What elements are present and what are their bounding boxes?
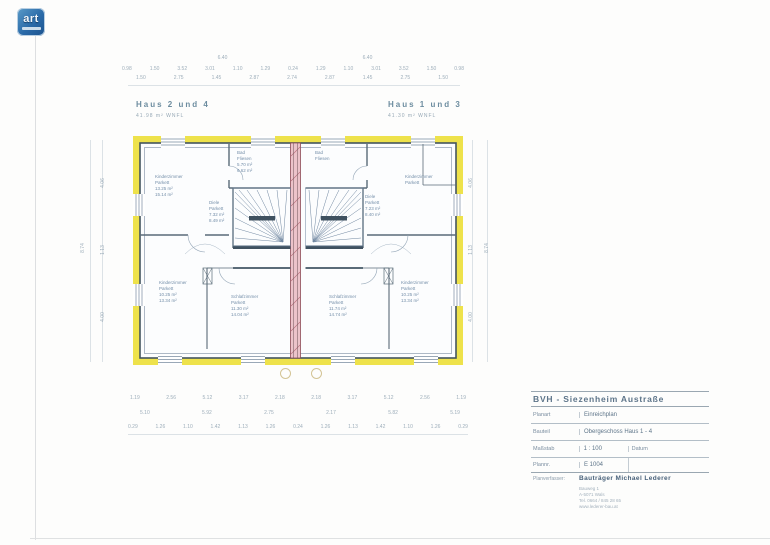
room-floor: Parkett <box>155 180 170 185</box>
dimension-value: 2.75 <box>400 75 410 81</box>
room-floor: Parkett <box>231 300 246 305</box>
field-label: Plannr. <box>531 462 579 468</box>
dimension-value: 1.29 <box>260 66 270 72</box>
scan-edge-line <box>35 28 36 540</box>
dimension-value: 1.50 <box>427 66 437 72</box>
room-area: 5.70 m² <box>237 162 253 167</box>
window-top-1 <box>161 136 185 148</box>
room-floor: Fliesen <box>237 156 252 161</box>
grid-bubble <box>280 368 291 379</box>
dimension-value: 5.12 <box>384 395 394 401</box>
room-area: 10.25 m² <box>401 292 419 297</box>
window-left-1 <box>133 194 145 216</box>
room-name: Kinderzimmer <box>159 280 187 285</box>
dimension-value: 4.06 <box>468 178 474 188</box>
dim-left-outer: 8.74 <box>80 243 86 253</box>
dimension-value: 1.26 <box>266 424 276 430</box>
dimension-value: 3.52 <box>177 66 187 72</box>
dimension-value: 0.29 <box>458 424 468 430</box>
window-bottom-1 <box>158 354 182 365</box>
grid-bubble <box>311 368 322 379</box>
dimension-value: 2.74 <box>287 75 297 81</box>
dimension-value: 5.92 <box>202 410 212 416</box>
party-wall <box>291 143 301 358</box>
dimension-value: 3.01 <box>205 66 215 72</box>
scanned-floor-plan-page: art Haus 2 und 4 41.98 m² WNFL Haus 1 un… <box>0 0 770 545</box>
room-floor: Fliesen <box>315 156 330 161</box>
plan-subtitle-left: 41.98 m² WNFL <box>136 113 184 119</box>
dimension-value: 1.10 <box>233 66 243 72</box>
dimension-value: 1.26 <box>431 424 441 430</box>
dimension-value: 1.10 <box>403 424 413 430</box>
room-area: 11.30 m² <box>231 306 249 311</box>
dimension-value: 2.56 <box>420 395 430 401</box>
dimension-value: 1.50 <box>136 75 146 81</box>
dimension-value: 0.98 <box>454 66 464 72</box>
room-floor: Parkett <box>401 286 416 291</box>
dimension-value: 2.75 <box>174 75 184 81</box>
dimension-value: 1.10 <box>183 424 193 430</box>
room-floor: Parkett <box>405 180 420 185</box>
dim-line-top <box>128 85 460 86</box>
plan-title-right: Haus 1 und 3 <box>388 100 462 109</box>
dimension-value: 1.19 <box>130 395 140 401</box>
room-name: Schlafzimmer <box>231 294 259 299</box>
field-spacer <box>628 458 664 472</box>
dimension-value: 4.06 <box>100 178 106 188</box>
scan-bottom-line <box>30 538 770 539</box>
dim-line-bottom <box>128 434 468 435</box>
dimension-value: 1.50 <box>438 75 448 81</box>
room-name: Bad <box>315 150 324 155</box>
dimension-value: 1.42 <box>211 424 221 430</box>
room-area: 13.34 m² <box>159 298 177 303</box>
room-name: Kinderzimmer <box>155 174 183 179</box>
dimension-value: 1.19 <box>456 395 466 401</box>
room-name: Schlafzimmer <box>329 294 357 299</box>
room-area: 8.40 m² <box>365 212 381 217</box>
dimension-value: 3.01 <box>371 66 381 72</box>
field-label: Datum <box>628 446 664 452</box>
logo-subtext-bar <box>22 27 41 30</box>
room-area: 7.23 m² <box>365 206 381 211</box>
dimension-value: 4.00 <box>100 312 106 322</box>
dim-chain-top-2: 1.502.751.452.872.742.871.452.751.50 <box>136 75 448 81</box>
dimension-value: 1.45 <box>212 75 222 81</box>
window-top-3 <box>321 136 345 148</box>
window-right-1 <box>451 194 463 216</box>
art-logo: art <box>17 8 45 36</box>
dimension-value: 2.87 <box>325 75 335 81</box>
room-area: 14.04 m² <box>231 312 249 317</box>
room-floor: Parkett <box>329 300 344 305</box>
floor-plan-drawing: Kinderzimmer Parkett 13.25 m² 15.14 m² B… <box>133 136 463 365</box>
title-block: BVH - Siezenheim Austraße Planart Einrei… <box>531 391 709 510</box>
dimension-value: 2.17 <box>326 410 336 416</box>
window-bottom-3 <box>331 354 355 365</box>
room-floor: Parkett <box>365 200 380 205</box>
address-line: www.lederer-bau.at <box>579 504 709 510</box>
dimension-value: 5.12 <box>203 395 213 401</box>
room-area: 10.25 m² <box>159 292 177 297</box>
titleblock-row-massstab: Maßstab 1 : 100 Datum <box>531 441 709 458</box>
titleblock-row-plannr: Plannr. E 1004 <box>531 458 709 472</box>
dimension-value: 2.18 <box>311 395 321 401</box>
window-right-2 <box>451 284 463 306</box>
window-top-2 <box>251 136 275 148</box>
author-name: Bauträger Michael Lederer <box>579 475 671 482</box>
dimension-value: 0.24 <box>288 66 298 72</box>
project-title: BVH - Siezenheim Austraße <box>531 392 709 407</box>
dimension-value: 3.17 <box>239 395 249 401</box>
room-area: 6.62 m² <box>237 168 253 173</box>
dimension-value: 5.82 <box>388 410 398 416</box>
dim-chain-right-inner: 4.061.134.00 <box>466 150 476 350</box>
field-value: Obergeschoss Haus 1 - 4 <box>579 429 709 435</box>
plan-subtitle-right: 41.30 m² WNFL <box>388 113 436 119</box>
dimension-value: 6.40 <box>218 55 228 61</box>
dimension-value: 0.24 <box>293 424 303 430</box>
dim-line-left-outer <box>90 140 91 362</box>
room-area: 13.34 m² <box>401 298 419 303</box>
room-name: Diele <box>365 194 376 199</box>
dimension-value: 1.13 <box>100 245 106 255</box>
room-area: 11.74 m² <box>329 306 347 311</box>
author-address: Bauweg 1A-5071 WalsTel. 0664 / 845 28 65… <box>579 486 709 510</box>
dimension-value: 1.13 <box>238 424 248 430</box>
titleblock-row-bauteil: Bauteil Obergeschoss Haus 1 - 4 <box>531 424 709 441</box>
dim-chain-top-span: 6.406.40 <box>150 55 440 61</box>
dimension-value: 5.19 <box>450 410 460 416</box>
dimension-value: 1.50 <box>150 66 160 72</box>
room-floor: Parkett <box>209 206 224 211</box>
window-bottom-2 <box>241 354 265 365</box>
dim-chain-left-inner: 4.061.134.00 <box>98 150 108 350</box>
titleblock-row-planart: Planart Einreichplan <box>531 407 709 424</box>
field-label: Bauteil <box>531 429 579 435</box>
room-name: Kinderzimmer <box>405 174 433 179</box>
dimension-value: 1.45 <box>363 75 373 81</box>
dimension-value: 2.87 <box>249 75 259 81</box>
dimension-value: 3.17 <box>348 395 358 401</box>
room-area: 8.49 m² <box>209 218 225 223</box>
room-area: 14.74 m² <box>329 312 347 317</box>
room-area: 15.14 m² <box>155 192 173 197</box>
dimension-value: 0.98 <box>122 66 132 72</box>
dimension-value: 1.13 <box>348 424 358 430</box>
dimension-value: 2.75 <box>264 410 274 416</box>
field-label: Maßstab <box>531 446 579 452</box>
dimension-value: 2.18 <box>275 395 285 401</box>
dim-chain-top-1: 0.981.503.523.011.101.290.241.291.103.01… <box>122 66 464 72</box>
field-label: Planverfasser: <box>531 476 579 482</box>
window-bottom-4 <box>414 354 438 365</box>
dimension-value: 6.40 <box>363 55 373 61</box>
dim-chain-bottom-2: 5.105.922.752.175.825.19 <box>140 410 460 416</box>
dimension-value: 3.52 <box>399 66 409 72</box>
window-left-2 <box>133 284 145 306</box>
dimension-value: 1.13 <box>468 245 474 255</box>
field-value: 1 : 100 <box>579 446 628 452</box>
dim-chain-bottom-1: 1.192.565.123.172.182.183.175.122.561.19 <box>130 395 466 401</box>
dimension-value: 0.29 <box>128 424 138 430</box>
dimension-value: 4.00 <box>468 312 474 322</box>
dimension-value: 1.29 <box>316 66 326 72</box>
logo-text: art <box>23 14 39 25</box>
field-value: Einreichplan <box>579 412 709 418</box>
dimension-value: 5.10 <box>140 410 150 416</box>
dimension-value: 1.42 <box>376 424 386 430</box>
room-floor: Parkett <box>159 286 174 291</box>
field-label: Planart <box>531 412 579 418</box>
plan-title-left: Haus 2 und 4 <box>136 100 210 109</box>
room-name: Bad <box>237 150 246 155</box>
titleblock-row-verfasser: Planverfasser: Bauträger Michael Lederer <box>531 473 709 484</box>
room-name: Kinderzimmer <box>401 280 429 285</box>
dim-right-outer: 8.74 <box>484 243 490 253</box>
dimension-value: 1.26 <box>321 424 331 430</box>
dim-chain-bottom-3: 0.291.261.101.421.131.260.241.261.131.42… <box>128 424 468 430</box>
field-value: E 1004 <box>579 462 628 468</box>
dimension-value: 1.10 <box>344 66 354 72</box>
room-area: 13.25 m² <box>155 186 173 191</box>
room-name: Diele <box>209 200 220 205</box>
dimension-value: 2.56 <box>166 395 176 401</box>
room-area: 7.32 m² <box>209 212 225 217</box>
dimension-value: 1.26 <box>156 424 166 430</box>
